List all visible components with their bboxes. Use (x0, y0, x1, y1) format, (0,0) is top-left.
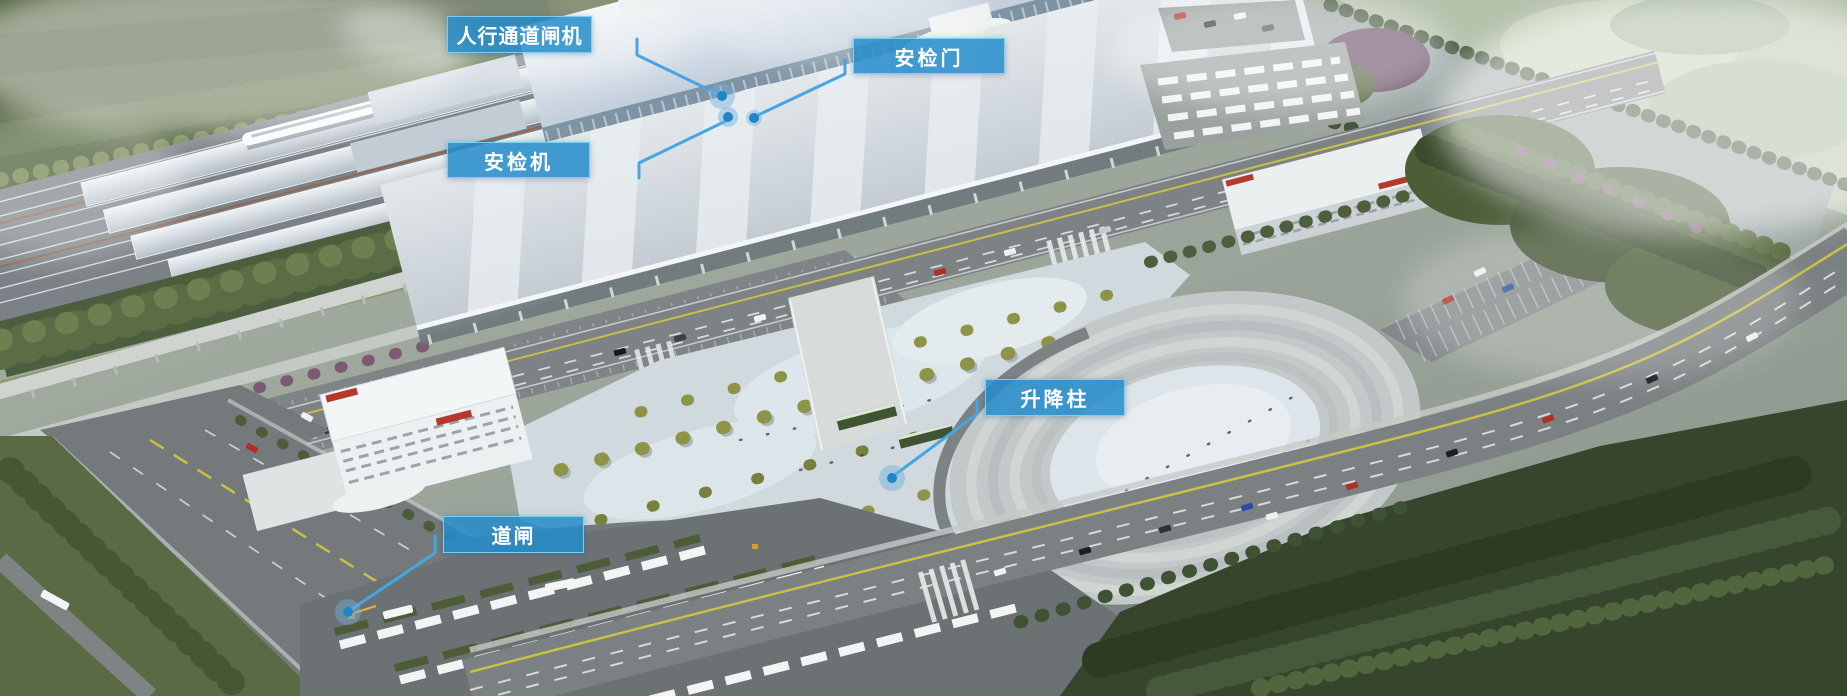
callout-label: 人行通道闸机 (457, 20, 583, 49)
callout-security-scanner: 安检机 (447, 142, 590, 178)
callout-label: 安检机 (484, 146, 553, 175)
marker-lift-bollard (879, 465, 905, 491)
callout-lift-bollard: 升降柱 (985, 379, 1125, 416)
callout-label: 升降柱 (1021, 383, 1090, 412)
callout-security-door: 安检门 (853, 38, 1005, 74)
annotation-overlay (0, 0, 1847, 696)
callout-label: 道闸 (492, 520, 536, 549)
marker-road-barrier (335, 599, 361, 625)
leader-line-road-barrier (349, 536, 435, 611)
marker-security-scanner (718, 107, 738, 127)
annotated-aerial-scene: 人行通道闸机 安检门 安检机 升降柱 道闸 (0, 0, 1847, 696)
callout-road-barrier-gate: 道闸 (443, 516, 584, 553)
leader-line-security-door (754, 60, 845, 117)
leader-line-lift-bollard (892, 401, 977, 477)
marker-pedestrian-gate (709, 83, 735, 109)
marker-security-door (746, 110, 762, 126)
leader-line-security-scanner (639, 120, 728, 178)
leader-line-pedestrian-gate (637, 39, 722, 96)
callout-pedestrian-gate-machine: 人行通道闸机 (447, 16, 592, 53)
callout-label: 安检门 (895, 42, 964, 71)
